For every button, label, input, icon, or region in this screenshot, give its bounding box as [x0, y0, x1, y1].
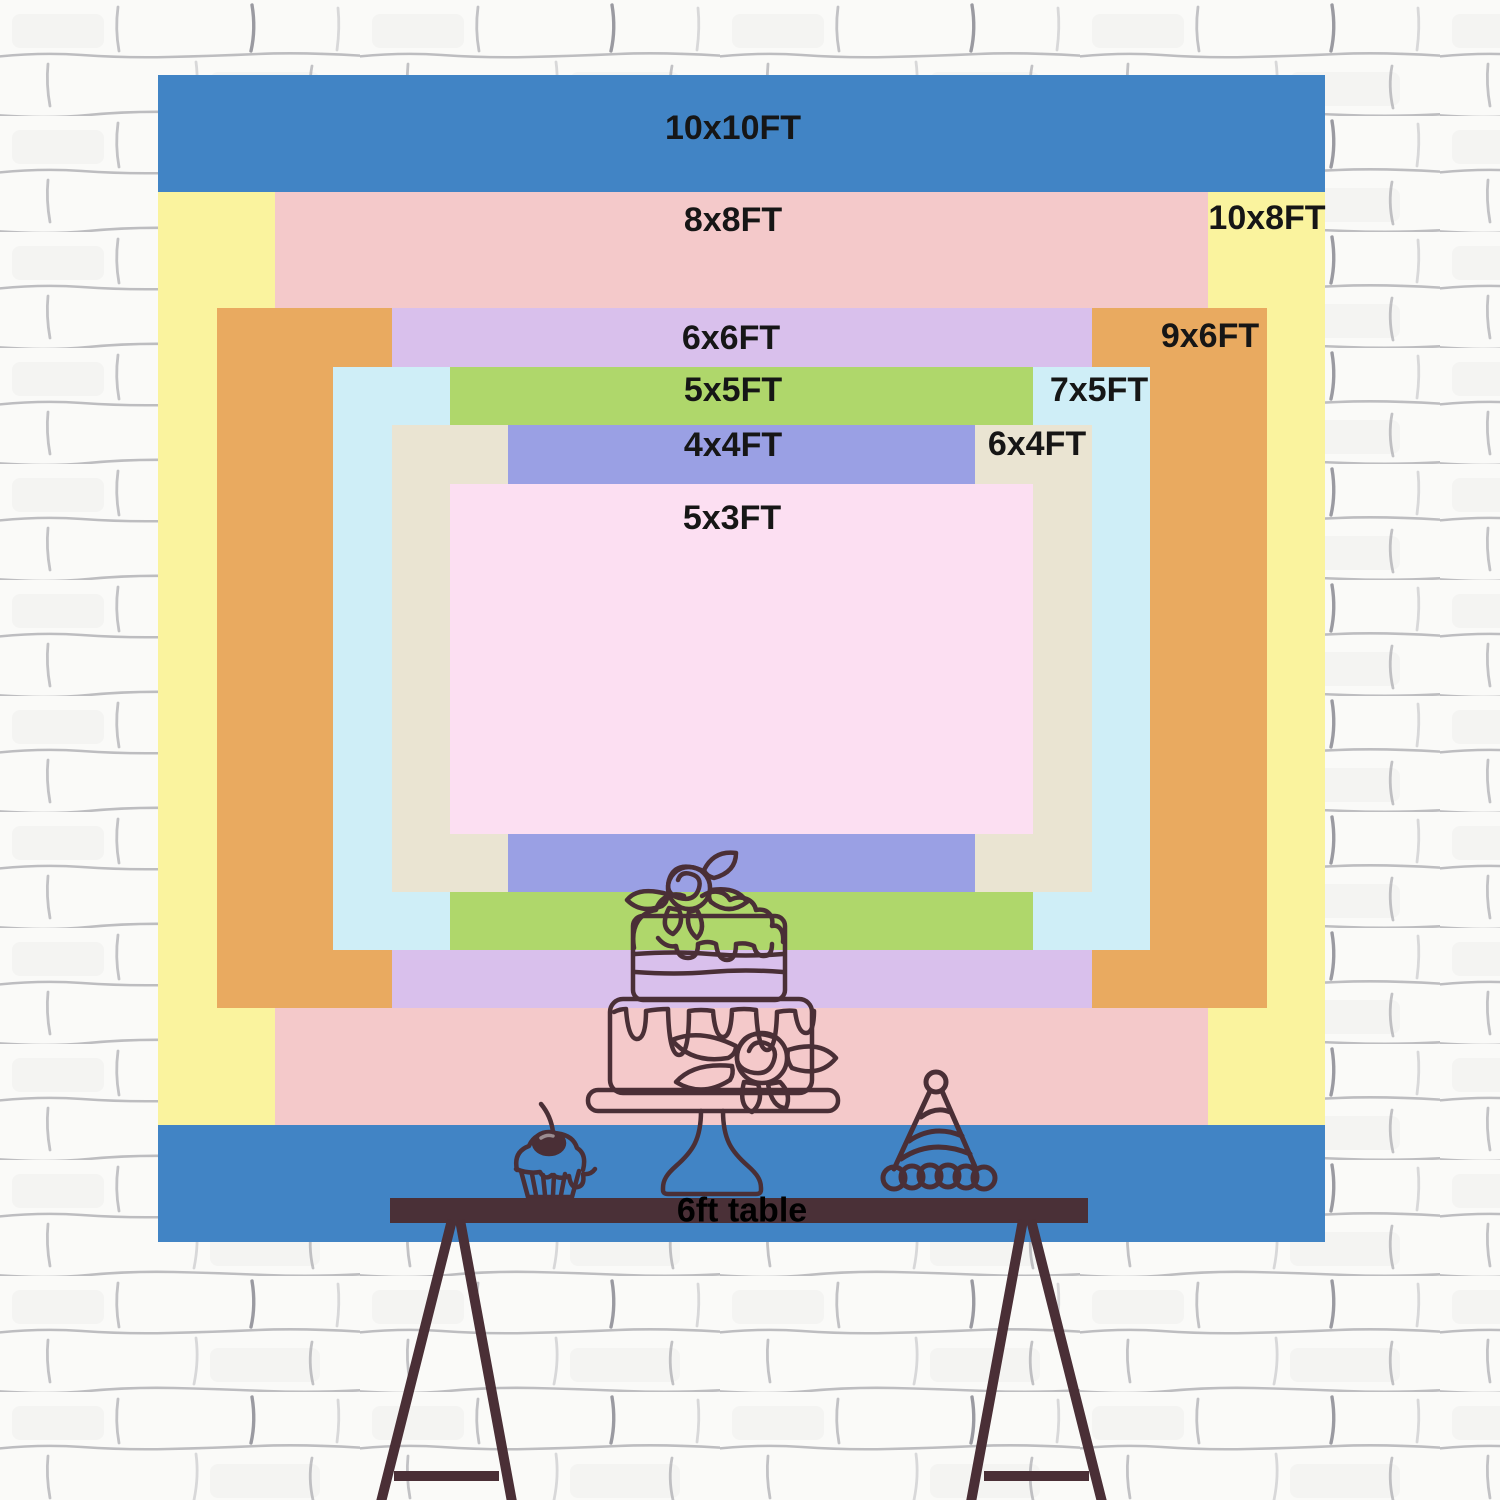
size-label-5x3: 5x3FT: [683, 501, 781, 535]
size-label-8x8: 8x8FT: [684, 203, 782, 237]
size-label-9x6: 9x6FT: [1161, 319, 1259, 353]
table-label: 6ft table: [677, 1192, 807, 1231]
size-label-7x5: 7x5FT: [1050, 373, 1148, 407]
backdrop-size-chart: 10x10FT 10x8FT 8x8FT 9x6FT 6x6FT 7x5FT 5…: [0, 0, 1500, 1500]
size-label-5x5: 5x5FT: [684, 373, 782, 407]
size-label-4x4: 4x4FT: [684, 428, 782, 462]
size-label-6x6: 6x6FT: [682, 321, 780, 355]
size-label-6x4: 6x4FT: [988, 427, 1086, 461]
size-label-10x10: 10x10FT: [665, 111, 801, 145]
size-label-10x8: 10x8FT: [1208, 201, 1325, 235]
